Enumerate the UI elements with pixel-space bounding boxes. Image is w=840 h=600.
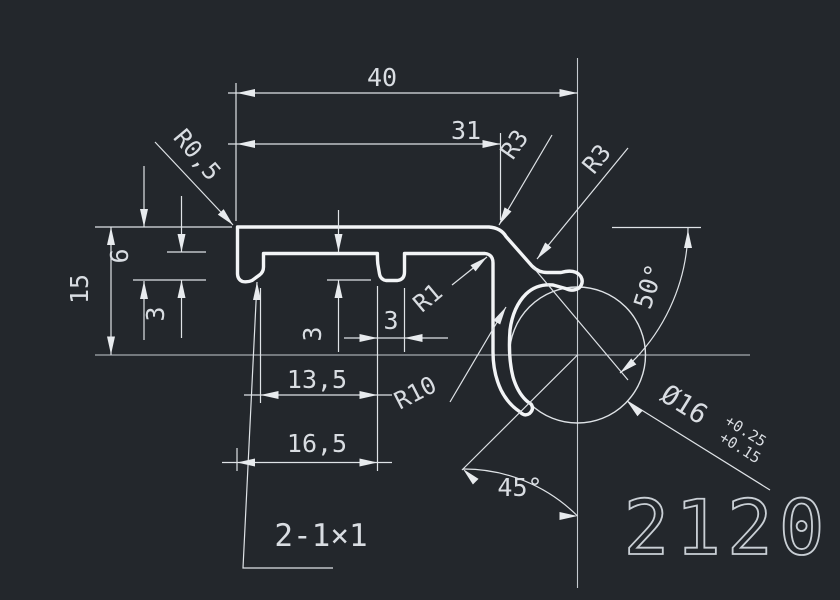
cad-canvas: 40 31 15 6 3 3 3 13,5 16,5 R0,5 R3 R3 R1… (0, 0, 840, 600)
dim-6-label: 6 (105, 248, 134, 263)
dim-3-rib-width-label: 3 (383, 306, 398, 335)
chamfer-note-label: 2-1×1 (274, 518, 367, 554)
dim-15-label: 15 (65, 274, 94, 304)
radius-r05-label: R0,5 (168, 124, 227, 186)
cad-drawing-svg: 40 31 15 6 3 3 3 13,5 16,5 R0,5 R3 R3 R1… (0, 0, 840, 600)
dim-31-label: 31 (451, 116, 481, 145)
radius-r1-label: R1 (408, 278, 448, 318)
dim-3-rib-depth-label: 3 (298, 326, 327, 341)
angle-45-label: 45° (497, 473, 542, 502)
labels: 40 31 15 6 3 3 3 13,5 16,5 R0,5 R3 R3 R1… (65, 63, 831, 572)
part-number-label: 2120 (623, 483, 830, 572)
dim-13-5-label: 13,5 (287, 365, 347, 394)
diameter-callout: Ø16 +0.25 +0.15 (655, 375, 773, 467)
radius-r10-label: R10 (390, 371, 441, 416)
ray-45deg (462, 355, 578, 470)
angle-50-label: 50° (628, 260, 670, 312)
dim-16-5-label: 16,5 (287, 429, 347, 458)
dim-40-label: 40 (367, 63, 397, 92)
radius-r3-hook-label: R3 (577, 139, 617, 179)
dim-3-lip-label: 3 (141, 306, 170, 321)
